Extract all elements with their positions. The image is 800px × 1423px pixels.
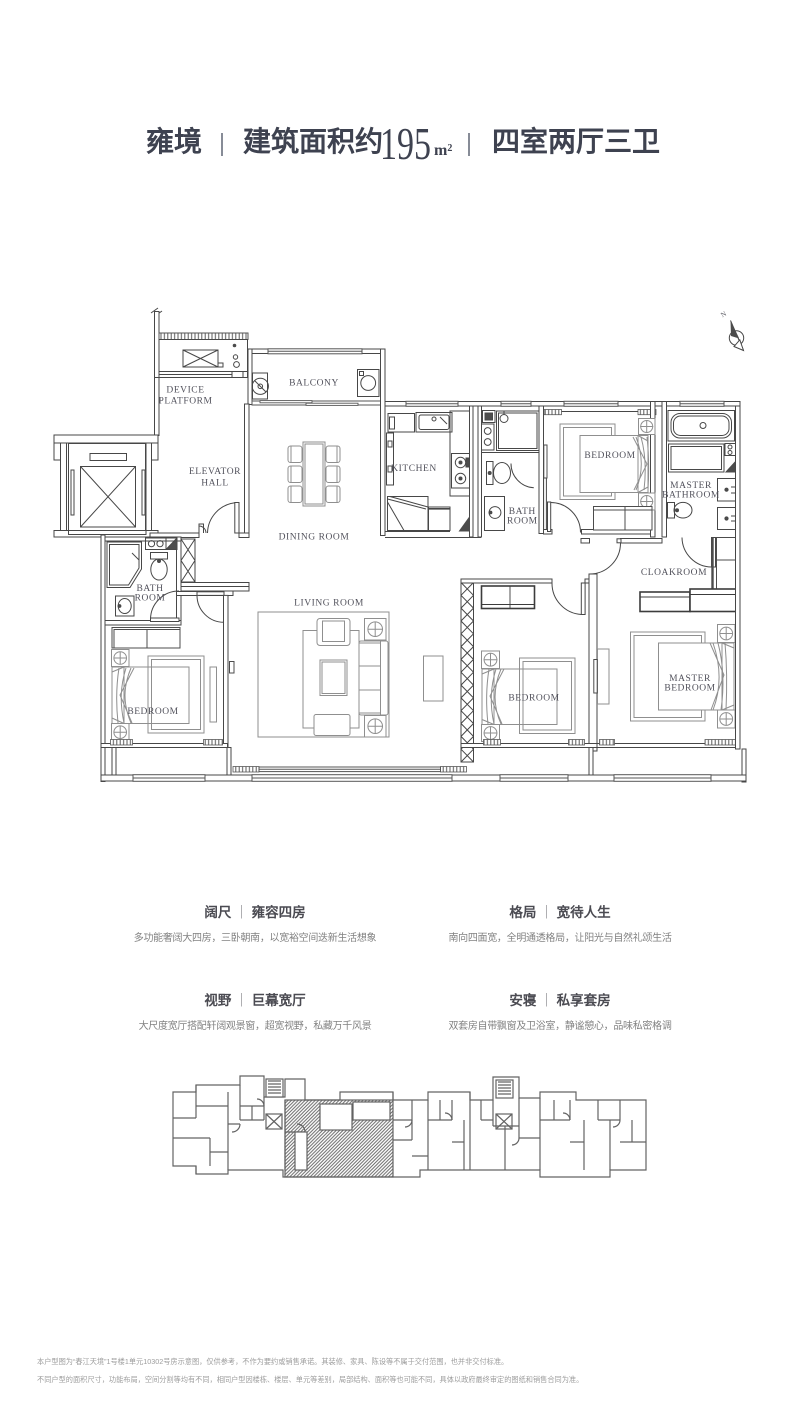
svg-text:DEVICE: DEVICE	[166, 386, 204, 396]
svg-text:BALCONY: BALCONY	[289, 379, 339, 389]
svg-text:BEDROOM: BEDROOM	[664, 684, 715, 694]
svg-text:BEDROOM: BEDROOM	[127, 707, 178, 717]
svg-text:BEDROOM: BEDROOM	[584, 451, 635, 461]
svg-text:ROOM: ROOM	[135, 594, 166, 604]
svg-text:PLATFORM: PLATFORM	[158, 397, 212, 407]
svg-text:BATHROOM: BATHROOM	[662, 491, 720, 501]
svg-text:KITCHEN: KITCHEN	[391, 464, 437, 474]
svg-text:ELEVATOR: ELEVATOR	[189, 467, 241, 477]
svg-text:BATH: BATH	[509, 507, 536, 517]
svg-text:MASTER: MASTER	[669, 674, 711, 684]
svg-text:LIVING ROOM: LIVING ROOM	[294, 599, 364, 609]
svg-text:HALL: HALL	[201, 479, 229, 489]
svg-text:N: N	[720, 310, 728, 319]
svg-text:MASTER: MASTER	[670, 481, 712, 491]
svg-text:BATH: BATH	[136, 584, 163, 594]
svg-text:BEDROOM: BEDROOM	[508, 694, 559, 704]
svg-text:ROOM: ROOM	[507, 517, 538, 527]
svg-text:CLOAKROOM: CLOAKROOM	[641, 568, 707, 578]
svg-text:DINING ROOM: DINING ROOM	[279, 533, 350, 543]
